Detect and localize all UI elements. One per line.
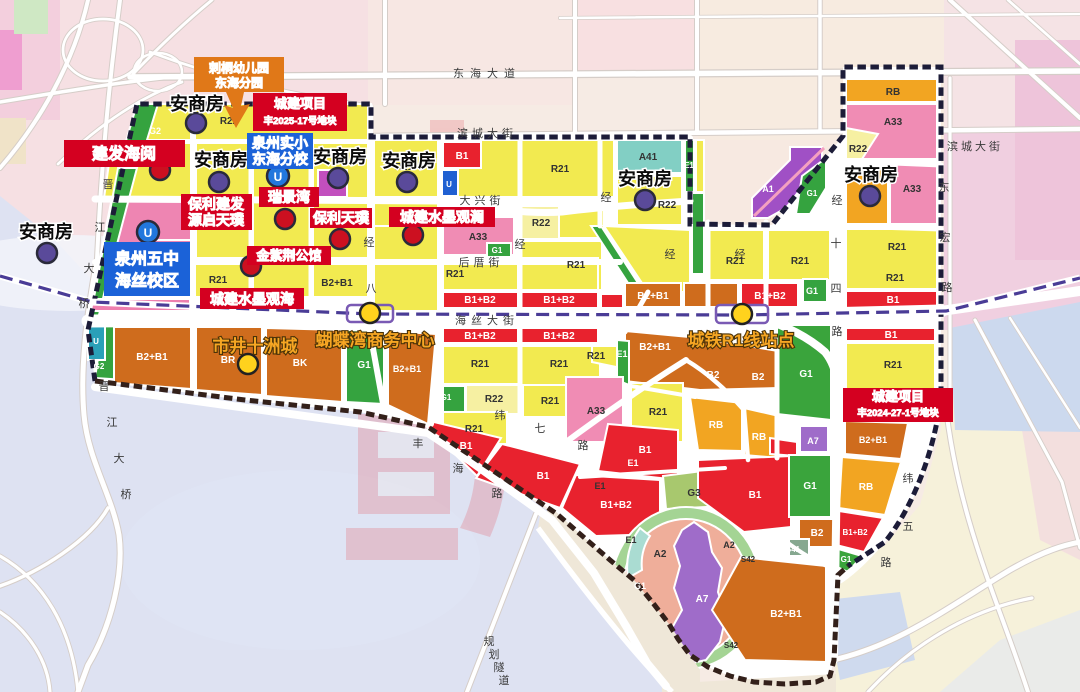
svg-text:路: 路 [942,281,953,294]
svg-text:E1: E1 [625,535,636,545]
svg-text:G2: G2 [94,362,105,371]
svg-text:R21: R21 [471,359,490,370]
svg-text:瑞景湾: 瑞景湾 [268,189,310,205]
svg-text:路: 路 [881,556,892,569]
svg-text:四: 四 [831,283,842,295]
svg-text:G1: G1 [357,360,371,371]
svg-text:规: 规 [484,634,495,648]
svg-text:B2: B2 [811,528,824,539]
svg-text:R21: R21 [550,359,569,370]
svg-text:S42: S42 [724,641,739,650]
svg-text:B1+B2: B1+B2 [754,291,786,302]
svg-text:安商房: 安商房 [313,146,367,167]
svg-text:U: U [93,337,99,346]
svg-text:B2+B1: B2+B1 [639,342,671,353]
svg-text:B1+B2: B1+B2 [464,295,496,306]
svg-text:G1: G1 [634,581,646,591]
svg-text:经: 经 [515,238,526,251]
svg-text:R22: R22 [485,394,504,405]
svg-text:R21: R21 [209,275,228,286]
svg-text:金紫荆公馆: 金紫荆公馆 [255,248,321,263]
svg-text:G1: G1 [807,189,818,198]
svg-text:B1: B1 [456,151,469,162]
svg-text:R21: R21 [791,256,810,267]
svg-text:城建项目: 城建项目 [872,389,924,404]
svg-text:建发海阅: 建发海阅 [92,144,156,163]
svg-text:滨城大街: 滨城大街 [947,139,1003,153]
svg-text:丰2024-27-1号地块: 丰2024-27-1号地块 [857,407,939,419]
svg-text:桥: 桥 [121,488,132,501]
svg-text:经: 经 [364,236,375,249]
svg-text:B2: B2 [752,372,765,383]
svg-text:R21: R21 [886,273,905,284]
svg-text:泉州实小: 泉州实小 [252,135,308,151]
svg-text:七: 七 [535,422,546,435]
svg-text:东海大道: 东海大道 [453,66,521,80]
svg-text:泉州五中: 泉州五中 [115,249,179,268]
svg-text:R22: R22 [849,144,868,155]
svg-text:源启天璞: 源启天璞 [188,212,245,228]
svg-text:R22: R22 [658,200,677,211]
svg-text:B1+B2: B1+B2 [543,331,575,342]
svg-text:丰: 丰 [413,437,424,450]
svg-text:大兴街: 大兴街 [460,193,505,207]
svg-text:海丝校区: 海丝校区 [115,271,179,290]
svg-text:道: 道 [499,673,510,687]
svg-text:纬: 纬 [495,409,506,422]
svg-text:保利建发: 保利建发 [187,196,245,212]
svg-text:G2: G2 [149,126,161,136]
svg-text:江: 江 [95,221,106,234]
svg-text:R21: R21 [446,269,465,280]
svg-text:城铁R1线站点: 城铁R1线站点 [688,330,795,350]
svg-text:晋: 晋 [103,178,114,191]
svg-text:B1: B1 [749,490,762,501]
svg-text:RB: RB [752,432,766,443]
svg-text:E1: E1 [594,481,605,491]
svg-text:R22: R22 [532,218,551,229]
svg-text:B1+B2: B1+B2 [543,295,575,306]
svg-text:B2+B1: B2+B1 [136,352,168,363]
svg-text:E1: E1 [616,349,627,359]
svg-text:宏: 宏 [940,230,951,244]
svg-text:A7: A7 [696,594,709,605]
svg-text:R21: R21 [567,260,586,271]
svg-text:G1: G1 [803,481,817,492]
svg-text:经: 经 [665,248,676,261]
svg-text:八: 八 [366,283,377,295]
svg-text:B1: B1 [885,330,898,341]
svg-text:B1+B2: B1+B2 [464,331,496,342]
svg-text:R21: R21 [551,164,570,175]
svg-text:安商房: 安商房 [382,150,436,171]
svg-text:城建水墨观澜: 城建水墨观澜 [400,209,484,225]
svg-text:A1: A1 [762,184,774,194]
svg-text:蝴蝶湾商务中心: 蝴蝶湾商务中心 [316,330,435,350]
svg-text:桥: 桥 [79,297,90,310]
svg-text:A2: A2 [723,540,735,550]
svg-text:U: U [274,170,283,184]
svg-text:安商房: 安商房 [194,149,248,170]
svg-text:东海分园: 东海分园 [215,75,263,90]
svg-text:市井十洲城: 市井十洲城 [213,336,298,356]
svg-text:划: 划 [489,648,500,661]
svg-text:滨城大街: 滨城大街 [457,126,517,140]
svg-text:E1: E1 [684,161,694,170]
svg-text:五: 五 [903,521,914,533]
svg-text:RB: RB [886,87,900,98]
svg-text:B1: B1 [537,471,550,482]
svg-text:丰2025-17号地块: 丰2025-17号地块 [264,115,337,127]
svg-text:经: 经 [832,194,843,207]
svg-text:后厝街: 后厝街 [459,255,504,269]
svg-text:路: 路 [492,487,503,500]
svg-text:RB: RB [859,482,873,493]
svg-text:B1: B1 [460,441,473,452]
svg-text:A33: A33 [903,184,922,195]
svg-text:BR: BR [221,355,236,366]
svg-text:A33: A33 [587,406,606,417]
svg-text:B2+B1: B2+B1 [637,291,669,302]
svg-text:晋: 晋 [99,380,110,393]
svg-text:R21: R21 [649,407,668,418]
svg-text:U: U [144,226,153,240]
svg-text:R21: R21 [888,242,907,253]
svg-text:安商房: 安商房 [844,164,898,185]
svg-text:B2+B1: B2+B1 [859,435,887,445]
svg-text:R21: R21 [884,360,903,371]
svg-text:G1: G1 [841,555,852,564]
svg-text:G3: G3 [687,488,701,499]
svg-text:路: 路 [832,325,843,338]
svg-text:A33: A33 [884,117,903,128]
svg-text:保利天璞: 保利天璞 [312,210,370,226]
svg-text:东海分校: 东海分校 [252,151,309,167]
svg-text:RB: RB [709,420,723,431]
svg-text:R21: R21 [465,424,484,435]
svg-text:纬: 纬 [903,472,914,485]
svg-text:E1: E1 [627,458,638,468]
svg-text:G1: G1 [441,393,452,402]
svg-text:海: 海 [453,461,464,475]
svg-text:G1: G1 [492,246,503,255]
svg-text:安商房: 安商房 [19,221,73,242]
svg-text:B2+B1: B2+B1 [770,609,802,620]
svg-text:刺桐幼儿园: 刺桐幼儿园 [208,60,269,75]
svg-text:R21: R21 [726,256,745,267]
svg-text:U: U [446,180,452,189]
svg-text:A41: A41 [639,152,658,163]
svg-text:江: 江 [107,416,118,429]
svg-text:城建项目: 城建项目 [274,96,326,111]
svg-text:A7: A7 [807,436,819,446]
svg-text:R21: R21 [541,396,560,407]
svg-text:大: 大 [84,261,95,275]
svg-text:B2: B2 [707,370,720,381]
svg-text:东: 东 [939,181,950,194]
svg-text:B1: B1 [639,445,652,456]
svg-text:隧: 隧 [494,660,505,674]
svg-text:经: 经 [601,191,612,204]
svg-text:B1+B2: B1+B2 [842,528,868,537]
svg-text:A33: A33 [469,232,488,243]
svg-text:海丝大街: 海丝大街 [455,313,519,327]
svg-text:G1: G1 [799,369,813,380]
svg-text:G1: G1 [806,286,818,296]
svg-text:B2+B1: B2+B1 [393,364,421,374]
svg-text:安商房: 安商房 [170,93,224,114]
svg-text:B2+B1: B2+B1 [321,278,353,289]
svg-text:S41: S41 [786,545,801,554]
svg-text:安商房: 安商房 [618,168,672,189]
svg-text:A2: A2 [654,549,667,560]
svg-text:BK: BK [293,358,308,369]
svg-text:十: 十 [831,236,842,250]
svg-text:路: 路 [578,439,589,452]
svg-text:城建水墨观海: 城建水墨观海 [210,291,294,307]
svg-text:R21: R21 [587,351,606,362]
svg-text:S42: S42 [741,555,756,564]
svg-text:B1+B2: B1+B2 [600,500,632,511]
svg-text:大: 大 [114,451,125,465]
svg-text:B1: B1 [887,295,900,306]
